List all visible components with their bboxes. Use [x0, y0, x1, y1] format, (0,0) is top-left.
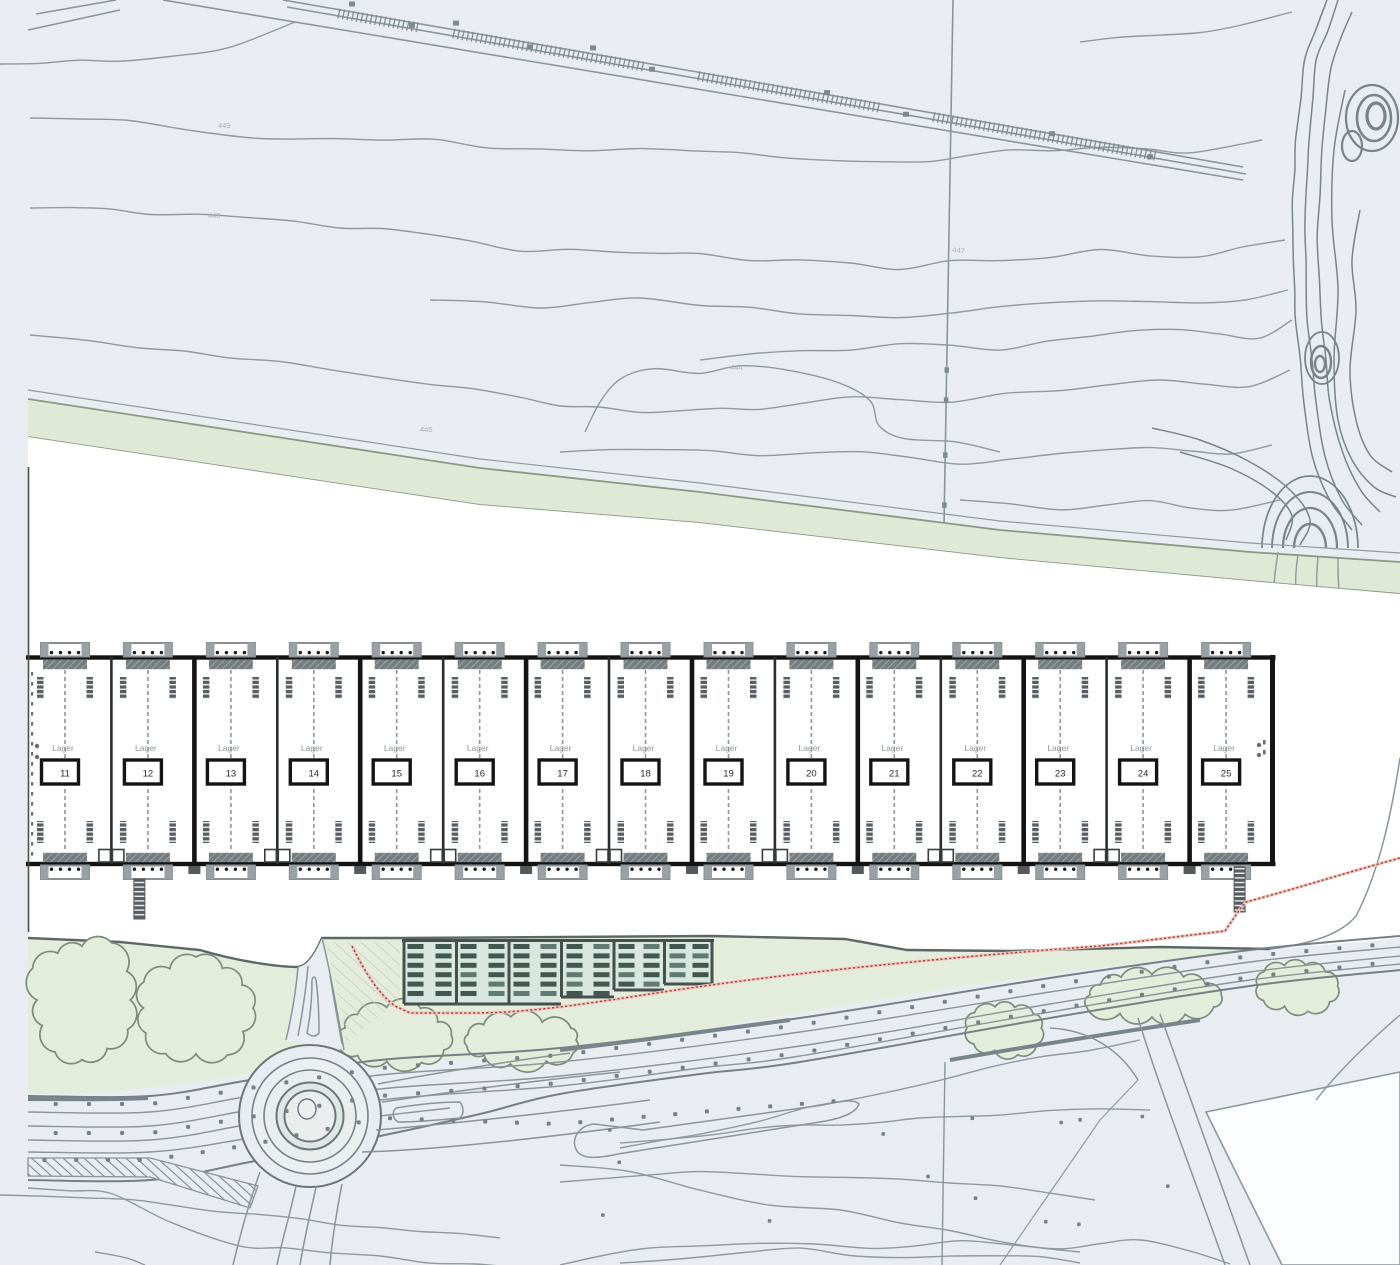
svg-text:Lager: Lager	[799, 743, 821, 753]
svg-text:18: 18	[640, 769, 651, 780]
svg-text:Lager: Lager	[964, 743, 986, 753]
svg-text:Lager: Lager	[52, 743, 74, 753]
svg-text:21: 21	[889, 769, 900, 780]
svg-text:22: 22	[972, 769, 983, 780]
svg-text:445: 445	[420, 425, 433, 434]
svg-text:Lager: Lager	[1213, 743, 1235, 753]
svg-text:11: 11	[60, 769, 70, 780]
svg-text:Lager: Lager	[881, 743, 903, 753]
svg-text:Lager: Lager	[467, 743, 489, 753]
svg-text:Lager: Lager	[1047, 743, 1069, 753]
svg-text:19: 19	[723, 769, 734, 780]
svg-text:448: 448	[208, 211, 221, 220]
svg-text:Lager: Lager	[1130, 743, 1152, 753]
svg-text:Lager: Lager	[550, 743, 572, 753]
svg-text:13: 13	[226, 769, 237, 780]
svg-text:Lager: Lager	[384, 743, 406, 753]
svg-text:23: 23	[1055, 769, 1066, 780]
svg-text:Lager: Lager	[218, 743, 240, 753]
svg-text:12: 12	[143, 769, 154, 780]
svg-text:449: 449	[218, 121, 231, 130]
svg-text:444: 444	[730, 363, 743, 372]
svg-text:15: 15	[391, 769, 402, 780]
svg-text:Lager: Lager	[301, 743, 323, 753]
svg-text:17: 17	[557, 769, 568, 780]
svg-text:25: 25	[1221, 769, 1232, 780]
svg-text:447: 447	[952, 245, 966, 256]
svg-text:20: 20	[806, 769, 817, 780]
svg-text:24: 24	[1138, 769, 1149, 780]
svg-text:16: 16	[474, 769, 485, 780]
svg-text:14: 14	[309, 769, 320, 780]
svg-text:Lager: Lager	[135, 743, 157, 753]
svg-text:Lager: Lager	[716, 743, 738, 753]
svg-text:Lager: Lager	[633, 743, 655, 753]
